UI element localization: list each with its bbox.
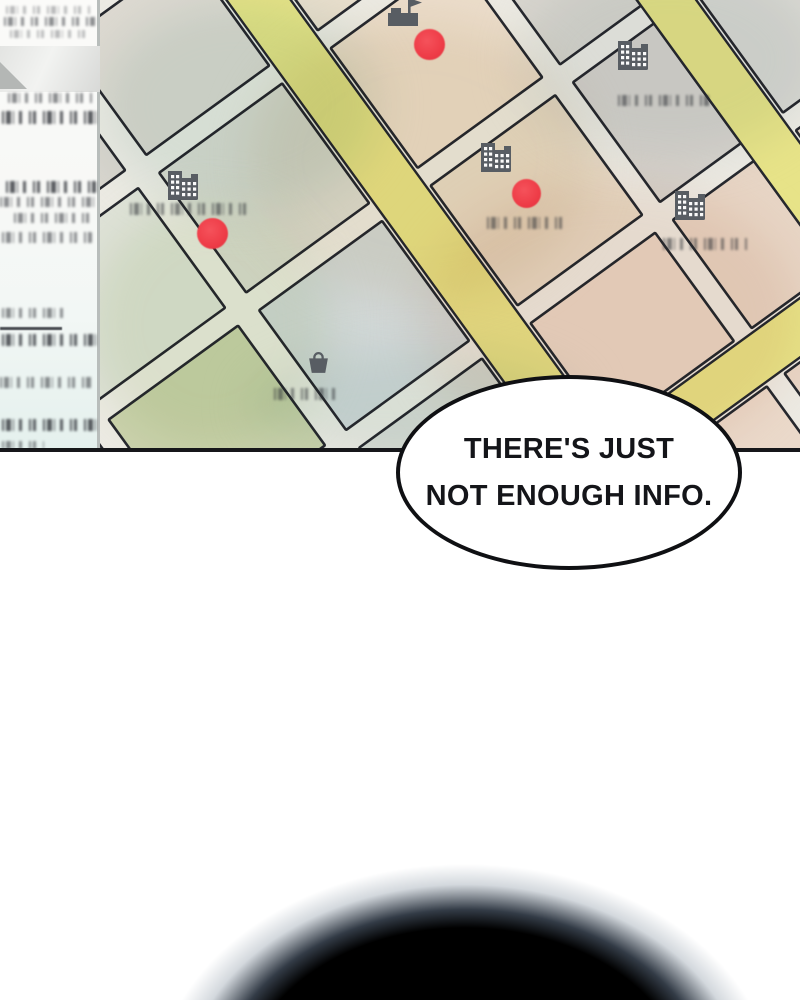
- underline-rule: [0, 327, 62, 330]
- redacted-text-line: [2, 308, 64, 318]
- redacted-text-line: [8, 93, 94, 103]
- redacted-text-line: [0, 197, 96, 207]
- paper-fold-triangle: [0, 62, 27, 89]
- flag-building-icon: [386, 0, 424, 28]
- redacted-text-line: [6, 181, 96, 193]
- speech-text-line1: THERE'S JUST: [464, 426, 674, 473]
- office-buildings-icon: [166, 170, 200, 202]
- map-marker-dot: [414, 29, 445, 60]
- head-silhouette: [0, 830, 800, 1000]
- redacted-text-line: [14, 213, 96, 223]
- redacted-text-line: [2, 111, 98, 124]
- redacted-text-line: [0, 377, 92, 388]
- blurred-document-sidebar: [0, 0, 100, 452]
- comic-panel: THERE'S JUST NOT ENOUGH INFO.: [0, 0, 800, 1000]
- speech-bubble: THERE'S JUST NOT ENOUGH INFO.: [396, 375, 742, 570]
- redacted-text-line: [10, 30, 88, 38]
- office-buildings-icon: [673, 190, 707, 222]
- redacted-text-line: [2, 334, 96, 346]
- blurred-map-label: [618, 95, 710, 106]
- redacted-text-line: [2, 232, 92, 243]
- blurred-map-label: [274, 388, 342, 400]
- redacted-text-line: [6, 6, 92, 14]
- map-marker-dot: [197, 218, 228, 249]
- blurred-map-label: [487, 217, 567, 229]
- blurred-map-label: [130, 203, 248, 215]
- office-buildings-icon: [616, 40, 650, 72]
- speech-text-line2: NOT ENOUGH INFO.: [426, 473, 713, 520]
- redacted-text-line: [2, 419, 96, 431]
- map-marker-dot: [512, 179, 541, 208]
- shopping-bag-icon: [305, 350, 332, 375]
- redacted-text-line: [4, 17, 96, 26]
- office-buildings-icon: [479, 142, 513, 174]
- blurred-map-label: [663, 238, 747, 250]
- city-map: [100, 0, 800, 452]
